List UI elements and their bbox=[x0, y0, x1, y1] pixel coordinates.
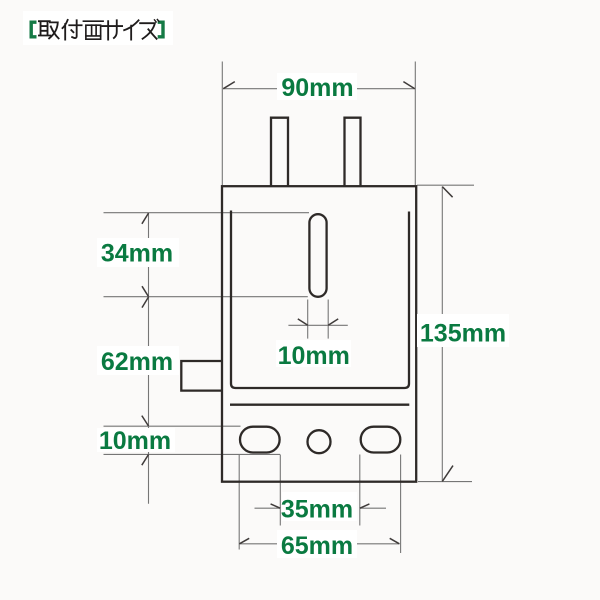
svg-text:34mm: 34mm bbox=[101, 240, 173, 268]
svg-text:135mm: 135mm bbox=[420, 320, 506, 348]
svg-text:10mm: 10mm bbox=[99, 427, 171, 455]
svg-text:10mm: 10mm bbox=[278, 342, 350, 370]
svg-text:90mm: 90mm bbox=[281, 74, 353, 102]
svg-text:62mm: 62mm bbox=[101, 348, 173, 376]
svg-text:65mm: 65mm bbox=[281, 532, 353, 560]
svg-text:35mm: 35mm bbox=[281, 496, 353, 524]
